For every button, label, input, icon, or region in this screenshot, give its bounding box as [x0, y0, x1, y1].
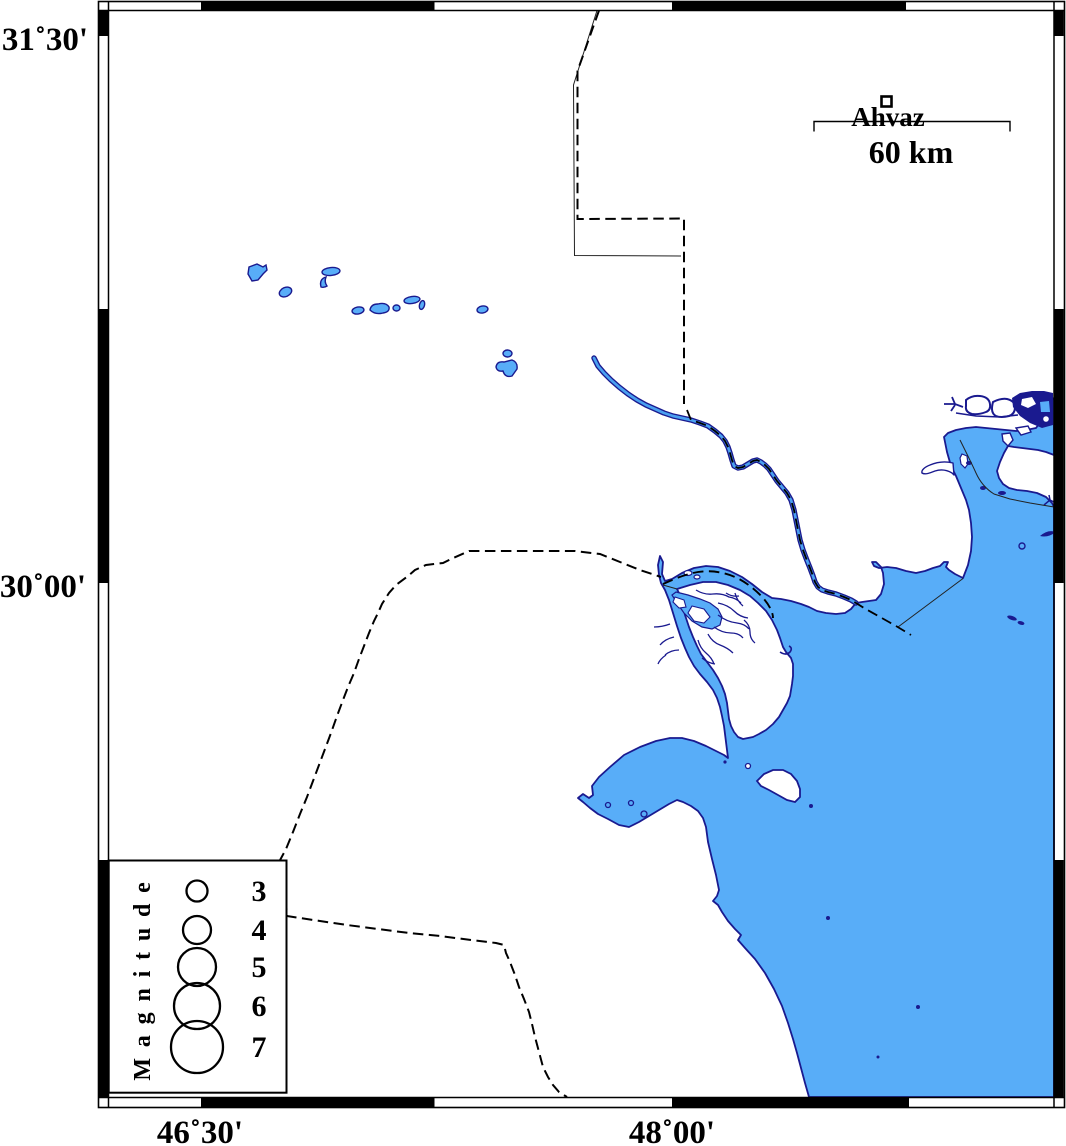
- svg-text:60 km: 60 km: [869, 134, 954, 170]
- svg-text:46˚30': 46˚30': [157, 1115, 243, 1146]
- svg-text:6: 6: [252, 990, 267, 1023]
- svg-text:7: 7: [252, 1031, 267, 1064]
- svg-text:4: 4: [252, 914, 267, 947]
- svg-text:48˚00': 48˚00': [629, 1115, 715, 1146]
- svg-text:Magnitude: Magnitude: [130, 871, 156, 1080]
- svg-text:30˚00': 30˚00': [0, 569, 86, 605]
- svg-text:5: 5: [252, 951, 267, 984]
- svg-text:3: 3: [252, 875, 267, 908]
- svg-text:31˚30': 31˚30': [2, 22, 88, 58]
- svg-text:Ahvaz: Ahvaz: [851, 102, 925, 132]
